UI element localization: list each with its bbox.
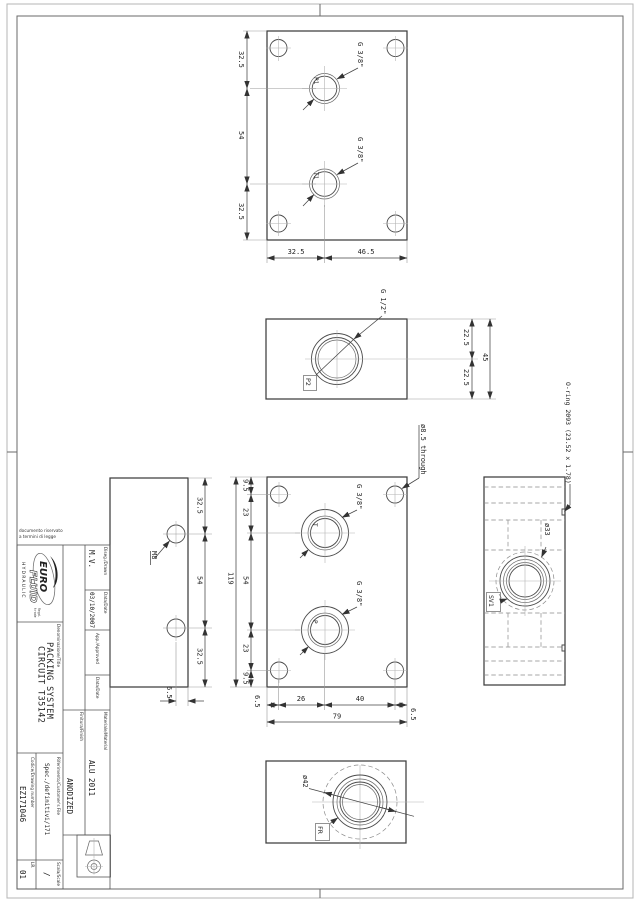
- dims-bottom: 32.5 46.5: [267, 205, 407, 263]
- projection-symbol-icon: [77, 835, 111, 877]
- dim-label: 32.5: [237, 203, 245, 220]
- reference-value: Spec./definitivi/171: [43, 763, 50, 836]
- m8-callout: M8: [150, 541, 170, 565]
- code-value: EZ171046: [18, 786, 27, 823]
- port-t: T G 3/8": [295, 484, 363, 563]
- eurofluid-logo: EURO FLUID HYDRAULIC Regd. trade: [20, 552, 58, 618]
- hole-callout-text: ø8.5 through: [419, 424, 427, 475]
- view-side-p2: P2 G 1/2" 22.5 22.5 45: [266, 289, 496, 399]
- engineering-drawing-sheet: P1 G 3/8" T1 G 3/8" 32.5 54 32.5: [0, 0, 640, 905]
- dim-label: 45: [481, 353, 489, 361]
- thread-callout: G 3/8": [355, 581, 363, 606]
- diameter-dim: ø42: [301, 775, 414, 816]
- port-p: P G 3/8": [295, 581, 363, 660]
- drawn-value: M.V.: [87, 550, 96, 568]
- rev-value: 01: [18, 870, 27, 879]
- title-label: Denominazione/Title: [56, 624, 61, 667]
- dim-label: 54: [237, 131, 245, 139]
- date2-label: Data/Date: [95, 677, 100, 699]
- dim-label: 46.5: [358, 248, 375, 256]
- dim-label: 32.5: [196, 497, 204, 514]
- date1-label: Data/Date: [103, 592, 108, 614]
- legal-note-line2: a termini di legge: [19, 534, 56, 539]
- port-label: P1: [312, 77, 319, 85]
- dim-label: 22.5: [462, 369, 470, 386]
- rev-label: LR.: [30, 862, 35, 868]
- port-label: T1: [312, 172, 319, 180]
- dim-label: 54: [242, 576, 250, 584]
- diameter-callout: ø42: [301, 775, 309, 788]
- view-top-face: P1 G 3/8" T1 G 3/8" 32.5 54 32.5: [237, 31, 408, 263]
- port-label: SV1: [487, 595, 495, 607]
- oring-callout-text: O-ring 2093 (23.52 x 1.78): [564, 382, 572, 484]
- dim-label: 32.5: [288, 248, 305, 256]
- thread-callout: G 1/2": [379, 289, 387, 314]
- dims-bottom-chain: 6.5 26 40 6.5 79: [253, 654, 417, 727]
- view-bottom-face: ø42 FR: [266, 761, 424, 849]
- thread-callout: M8: [150, 551, 158, 559]
- corner-holes: [266, 36, 408, 236]
- thread-callout: G 3/8": [355, 484, 363, 509]
- corner-holes: [267, 482, 407, 683]
- title-block: documento riservato a termini di legge E…: [17, 528, 111, 889]
- port-label: T: [311, 523, 318, 527]
- port-sv1: ø33 SV1: [487, 523, 562, 616]
- title-line2: CIRCUIT T35142: [36, 646, 46, 723]
- view-back-face: ø8.5 through T G 3/8" P G 3/8": [227, 424, 428, 727]
- logo-subtitle: HYDRAULIC: [20, 562, 26, 599]
- port-label: FR: [316, 826, 324, 834]
- hole-callout: ø8.5 through: [402, 424, 427, 489]
- logo-regd2: trade: [33, 608, 37, 618]
- finish-value: ANODIZED: [65, 778, 74, 815]
- dim-label: 54: [196, 576, 204, 584]
- dim-label: 40: [356, 695, 364, 703]
- dim-label: 22.5: [462, 329, 470, 346]
- thread-callout: G 3/8": [356, 137, 364, 162]
- dim-label: 23: [242, 644, 250, 652]
- dims-left: 32.5 54 32.5: [237, 31, 316, 240]
- port-label: P2: [304, 378, 312, 386]
- dim-label: 9.5: [242, 672, 250, 685]
- dims-right: 32.5 54 32.5: [189, 478, 212, 687]
- dim-label: 26: [297, 695, 305, 703]
- dim-label-total-width: 79: [333, 713, 341, 721]
- dim-label: 32.5: [196, 648, 204, 665]
- sheet-border: [7, 4, 633, 898]
- thread-callout: G 3/8": [356, 42, 364, 67]
- port-t1: T1 G 3/8": [302, 137, 364, 207]
- dim-label: 23: [242, 508, 250, 516]
- logo-word2: FLUID: [27, 570, 38, 603]
- scale-value: /: [42, 872, 51, 877]
- legal-note: documento riservato a termini di legge: [19, 528, 63, 539]
- dim-label-total-height: 119: [227, 572, 235, 585]
- logo-swoosh: [50, 556, 58, 588]
- date1-value: 03/10/2007: [88, 592, 95, 629]
- approved-label: App./Approved: [95, 633, 100, 664]
- drawing-canvas: P1 G 3/8" T1 G 3/8" 32.5 54 32.5: [0, 0, 640, 905]
- dim-label: 9.5: [242, 479, 250, 492]
- material-label: Materiale/Material: [103, 712, 108, 750]
- reference-label: Riferimento/Customer's File: [56, 757, 61, 815]
- dim-label: 6.5: [253, 695, 261, 708]
- code-label: Codice/Drawing number: [30, 757, 35, 808]
- port-label: P: [311, 620, 318, 624]
- port-p1: P1 G 3/8": [302, 42, 364, 111]
- diameter-callout: ø33: [543, 523, 551, 536]
- dim-label: 32.5: [237, 51, 245, 68]
- dims-left-chain: 9.5 23 54 23 9.5 119: [227, 477, 301, 687]
- drawn-label: Diseg./Drawn: [103, 547, 108, 575]
- legal-note-line1: documento riservato: [19, 528, 63, 533]
- material-value: ALU 2011: [87, 760, 96, 796]
- dim-label: 6.5: [165, 686, 173, 699]
- view-side-m8: M8 32.5 54 32.5 6.5: [110, 478, 212, 706]
- view-side-sv1: ø33 SV1 O-ring 2093 (23.52 x 1.78): [484, 382, 572, 685]
- scale-label: Scala/Scale: [56, 862, 61, 886]
- dim-label: 6.5: [409, 708, 417, 721]
- finish-label: Finitura/Finish: [79, 712, 84, 741]
